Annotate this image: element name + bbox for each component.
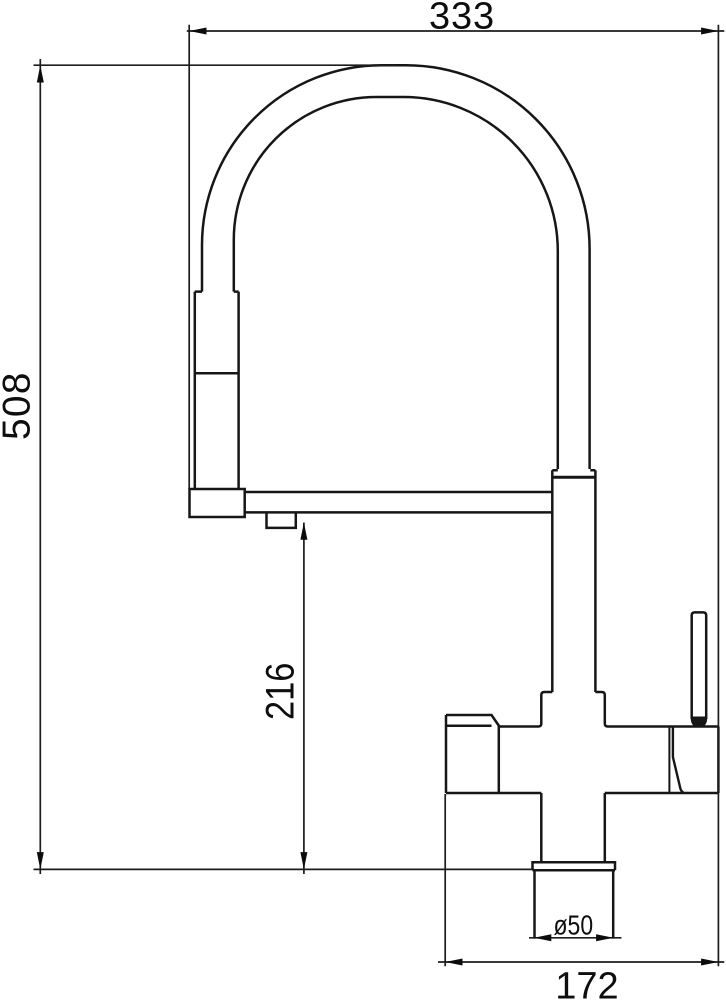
svg-text:172: 172 [555, 965, 618, 1000]
svg-text:333: 333 [429, 0, 495, 37]
svg-text:216: 216 [257, 663, 302, 720]
svg-text:ø50: ø50 [554, 911, 594, 942]
svg-text:508: 508 [0, 371, 38, 440]
